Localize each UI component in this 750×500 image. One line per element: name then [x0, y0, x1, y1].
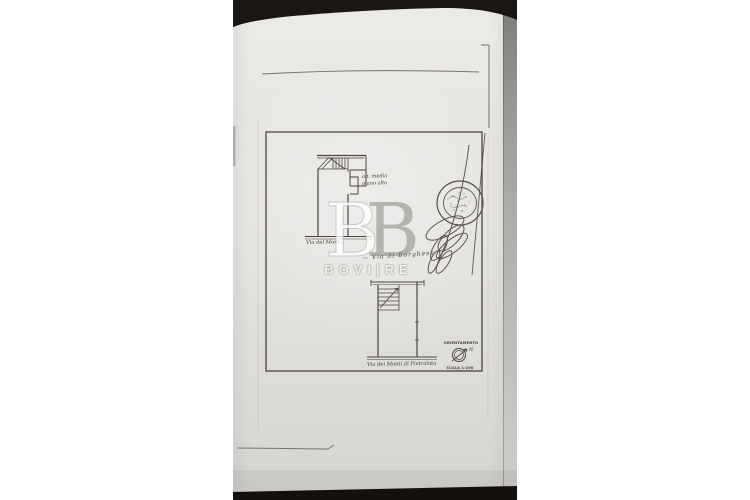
upper-note-line1: alt. media: [362, 173, 387, 180]
floorplan-drawing: Via del Mont... alt. media piano alto Vi…: [233, 0, 517, 500]
orientation-label: ORIENTAMENTO: [444, 341, 479, 345]
compass-icon: [452, 349, 467, 362]
top-shadow-band: [233, 0, 517, 27]
lower-floor-plan: Via dei Monti di Pietralata: [367, 280, 437, 368]
upper-note-line2: piano alto: [362, 180, 387, 187]
drawing-frame: [266, 132, 482, 371]
upper-street-label: Via del Mont...: [306, 239, 345, 246]
lower-street-label: Via dei Monti di Pietralata: [367, 361, 436, 368]
scale-label: SCALA 1:200: [446, 366, 474, 370]
orientation-block: ORIENTAMENTO N SCALA 1:200: [444, 341, 479, 371]
north-label: N: [468, 347, 474, 353]
notary-stamp: [423, 181, 483, 275]
middle-street-label: Via di Borghese: [372, 250, 435, 261]
scanned-floorplan-photo: Via del Mont... alt. media piano alto Vi…: [233, 0, 517, 500]
upper-floor-plan: Via del Mont... alt. media piano alto: [305, 156, 387, 246]
